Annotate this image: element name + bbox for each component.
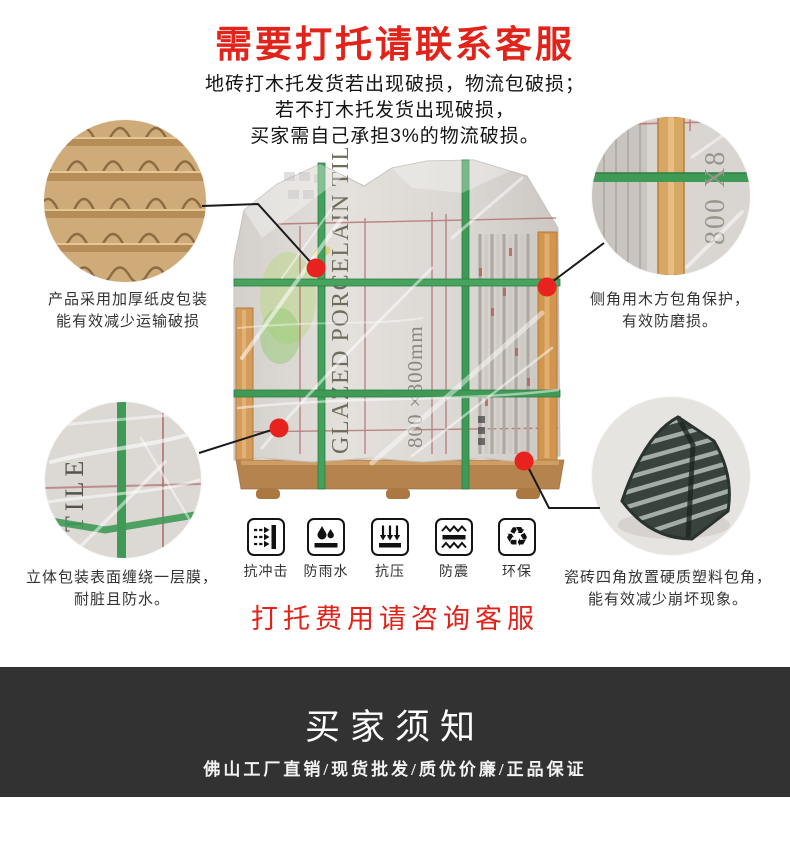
feature-pressure: 抗压 <box>357 518 423 581</box>
feature-label: 抗压 <box>357 561 423 581</box>
feature-rainproof: 防雨水 <box>293 518 359 581</box>
rainproof-icon <box>307 518 345 556</box>
page-title: 需要打托请联系客服 <box>0 14 790 68</box>
feature-label: 防雨水 <box>293 561 359 581</box>
feature-eco: ♻ 环保 <box>484 518 550 581</box>
page: 需要打托请联系客服 地砖打木托发货若出现破损，物流包破损； 若不打木托发货出现破… <box>0 0 790 841</box>
feature-strip: 抗冲击 防雨水 <box>0 518 790 586</box>
recycle-glyph: ♻ <box>505 524 529 551</box>
pallet-fee-note: 打托费用请咨询客服 <box>0 597 790 636</box>
caption-cardboard: 产品采用加厚纸皮包装 能有效减少运输破损 <box>0 289 258 333</box>
feature-label: 防震 <box>421 561 487 581</box>
callout-circle-cardboard <box>44 120 206 282</box>
buyer-notice-subtitle: 佛山工厂直销/现货批发/质优价廉/正品保证 <box>0 755 790 780</box>
buyer-notice-title: 买家须知 <box>0 699 790 750</box>
buyer-notice-banner: 买家须知 佛山工厂直销/现货批发/质优价廉/正品保证 <box>0 667 790 797</box>
product-photo: GLAZED PORCELAIN TILE 800 ×800mm <box>222 148 582 516</box>
feature-impact: 抗冲击 <box>233 518 299 581</box>
pressure-icon <box>371 518 409 556</box>
caption-cardboard-line2: 能有效减少运输破损 <box>0 311 258 333</box>
detail-size-text: 800 X8 <box>700 150 731 245</box>
cardboard-photo <box>44 120 206 282</box>
shockproof-icon <box>435 518 473 556</box>
eco-icon: ♻ <box>498 518 536 556</box>
feature-label: 抗冲击 <box>233 561 299 581</box>
caption-cardboard-line1: 产品采用加厚纸皮包装 <box>0 289 258 311</box>
feature-label: 环保 <box>484 561 550 581</box>
wooden-pallet <box>236 460 564 499</box>
package-label-text: GLAZED PORCELAIN TILE <box>328 148 354 454</box>
wood-corner-photo: 800 X8 <box>592 117 750 275</box>
feature-shockproof: 防震 <box>421 518 487 581</box>
callout-circle-wood-corner: 800 X8 <box>592 117 750 275</box>
impact-icon <box>247 518 285 556</box>
intro-line-1: 地砖打木托发货若出现破损，物流包破损； <box>0 72 790 98</box>
